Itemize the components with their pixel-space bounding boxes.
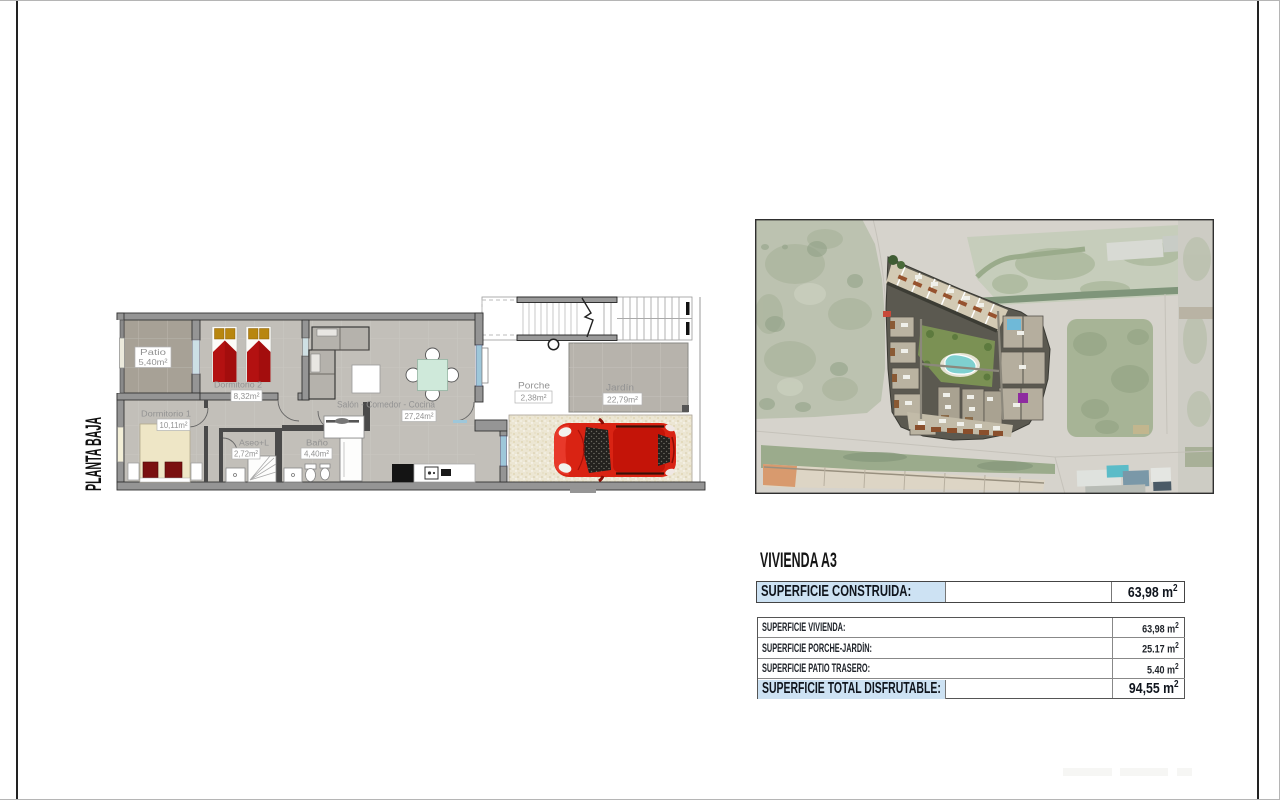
svg-text:Baño: Baño [306,439,329,448]
svg-text:Dormitorio 2: Dormitorio 2 [214,381,263,390]
svg-text:4,40m²: 4,40m² [304,449,329,459]
svg-text:2,72m²: 2,72m² [234,449,258,459]
svg-text:10,11m²: 10,11m² [160,420,188,430]
svg-text:Porche: Porche [518,381,550,391]
svg-text:Salón - Comedor - Cocina: Salón - Comedor - Cocina [337,400,435,410]
svg-text:Jardín: Jardín [606,383,634,393]
svg-text:Dormitorio 1: Dormitorio 1 [141,410,192,419]
svg-text:27,24m²: 27,24m² [405,411,434,421]
svg-text:Aseo+L: Aseo+L [239,439,270,448]
svg-text:5,40m²: 5,40m² [139,357,168,367]
svg-text:22,79m²: 22,79m² [607,395,638,405]
svg-text:8,32m²: 8,32m² [234,391,260,401]
svg-text:Patio: Patio [140,348,167,357]
svg-text:2,38m²: 2,38m² [521,393,547,403]
